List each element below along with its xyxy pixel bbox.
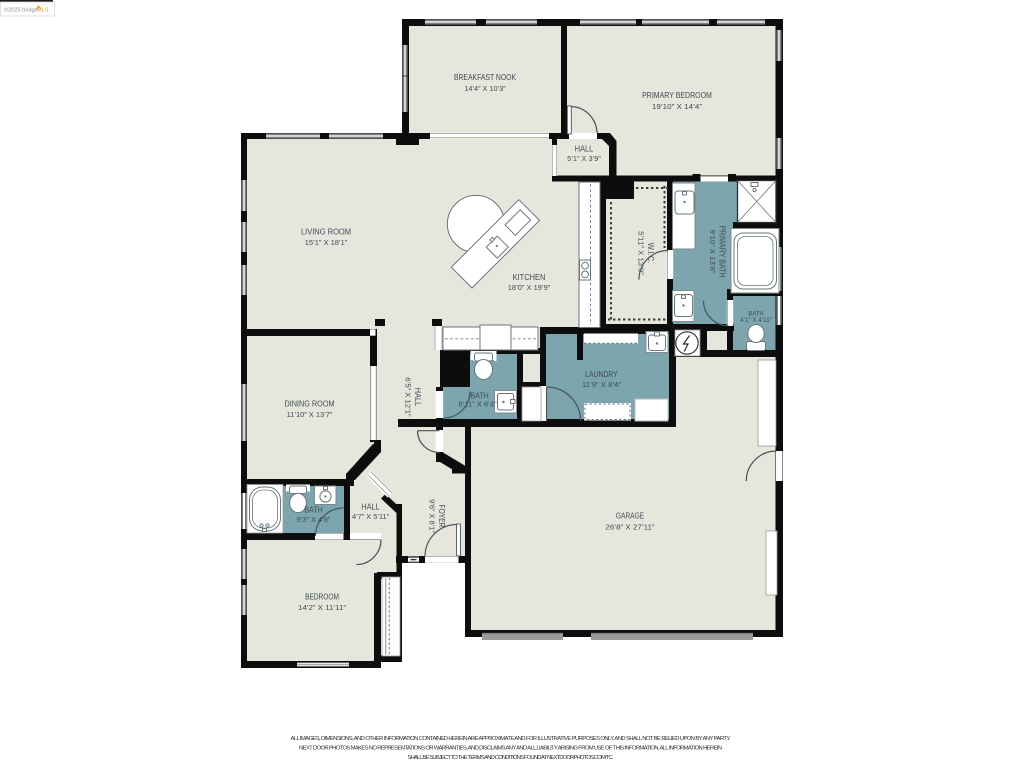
svg-text:4’7” X 5’11”: 4’7” X 5’11”: [352, 512, 390, 521]
svg-text:DINING ROOM: DINING ROOM: [284, 400, 334, 409]
svg-text:FOYER: FOYER: [437, 505, 446, 528]
svg-text:4’1” X 4’11”: 4’1” X 4’11”: [740, 317, 772, 324]
svg-text:18’0” X 19’9”: 18’0” X 19’9”: [508, 283, 551, 292]
svg-text:6’5” X 12’1”: 6’5” X 12’1”: [404, 377, 413, 417]
svg-text:5’1” X 3’9”: 5’1” X 3’9”: [567, 154, 601, 163]
svg-text:26’8” X 27’11”: 26’8” X 27’11”: [605, 523, 655, 532]
svg-text:BEDROOM: BEDROOM: [305, 593, 339, 602]
svg-text:HALL: HALL: [575, 145, 594, 154]
svg-text:LIVING ROOM: LIVING ROOM: [301, 228, 351, 237]
svg-text:15’1” X 18’1”: 15’1” X 18’1”: [305, 238, 348, 247]
svg-text:NEXT DOOR PHOTOS MAKES NO REPR: NEXT DOOR PHOTOS MAKES NO REPRESENTATION…: [299, 746, 722, 752]
svg-text:BATH: BATH: [304, 506, 323, 515]
svg-text:9’10” X 13’8”: 9’10” X 13’8”: [708, 230, 717, 274]
svg-text:11’9” X 8’4”: 11’9” X 8’4”: [582, 380, 622, 389]
svg-text:©2025 bridge: ©2025 bridge: [4, 7, 38, 14]
svg-text:6’11” X 6’4”: 6’11” X 6’4”: [458, 400, 497, 409]
svg-text:9’3” X 4’8”: 9’3” X 4’8”: [297, 515, 331, 524]
svg-text:PRIMARY BEDROOM: PRIMARY BEDROOM: [642, 91, 712, 100]
svg-text:KITCHEN: KITCHEN: [513, 273, 546, 282]
svg-text:9’6” X 8’1”: 9’6” X 8’1”: [428, 499, 437, 533]
svg-text:14’4” X 10’3”: 14’4” X 10’3”: [464, 84, 506, 93]
svg-text:HALL: HALL: [413, 388, 422, 407]
svg-text:19’10” X 14’4”: 19’10” X 14’4”: [652, 102, 703, 111]
svg-text:LAUNDRY: LAUNDRY: [585, 370, 618, 379]
svg-text:HALL: HALL: [361, 503, 380, 512]
svg-text:11’10” X 13’7”: 11’10” X 13’7”: [287, 410, 333, 419]
svg-text:GARAGE: GARAGE: [616, 512, 645, 521]
svg-text:PRIMARY BATH: PRIMARY BATH: [718, 225, 727, 277]
svg-text:5’11” X 13’9”: 5’11” X 13’9”: [637, 231, 646, 275]
svg-text:W.I.C.: W.I.C.: [646, 243, 655, 264]
svg-text:BREAKFAST NOOK: BREAKFAST NOOK: [454, 73, 517, 82]
svg-text:14’2” X 11’11”: 14’2” X 11’11”: [298, 603, 347, 612]
svg-text:ALL IMAGES, DIMENSIONS, AND OT: ALL IMAGES, DIMENSIONS, AND OTHER INFORM…: [291, 736, 731, 742]
svg-text:SHALL BE SUBJECT TO THE TERMS: SHALL BE SUBJECT TO THE TERMS AND CONDIT…: [408, 755, 614, 761]
